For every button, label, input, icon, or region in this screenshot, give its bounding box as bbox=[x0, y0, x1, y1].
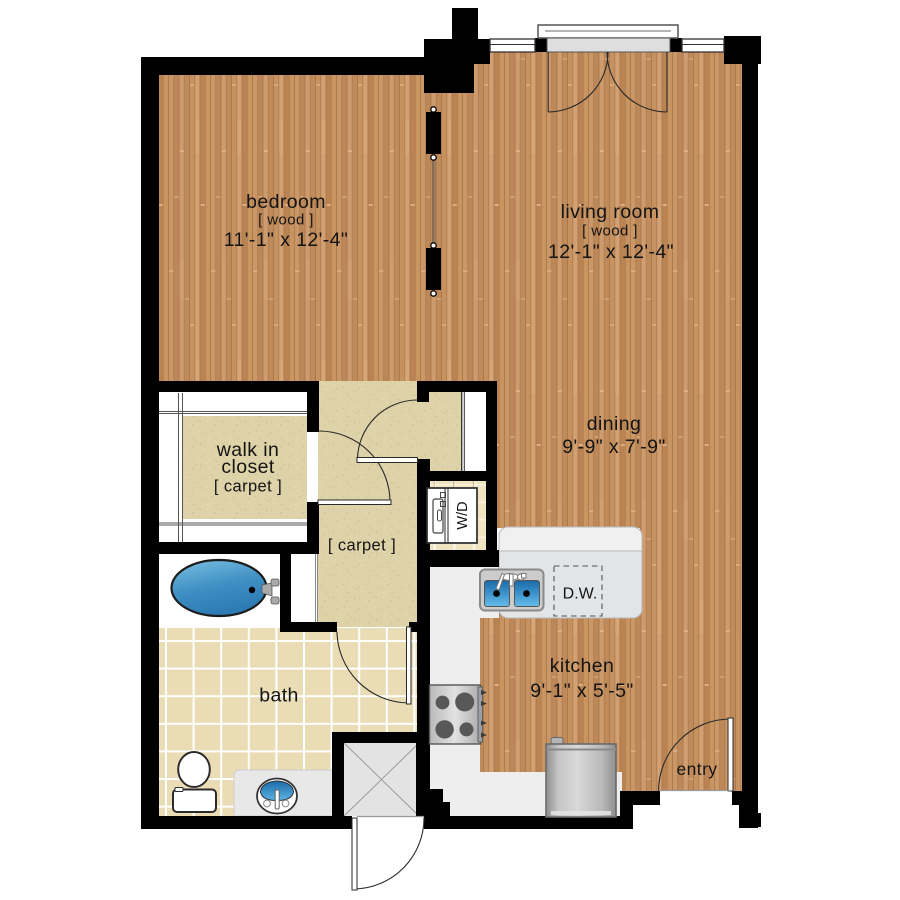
svg-text:W/D: W/D bbox=[455, 501, 471, 529]
svg-text:living room: living room bbox=[561, 201, 660, 223]
svg-text:[ wood ]: [ wood ] bbox=[582, 223, 638, 240]
svg-text:closet: closet bbox=[221, 456, 275, 478]
svg-text:kitchen: kitchen bbox=[550, 655, 615, 677]
svg-text:dining: dining bbox=[587, 413, 641, 435]
svg-text:[ carpet ]: [ carpet ] bbox=[214, 478, 282, 496]
svg-text:[ wood ]: [ wood ] bbox=[258, 212, 314, 229]
svg-text:[ carpet ]: [ carpet ] bbox=[328, 537, 396, 555]
svg-text:bath: bath bbox=[259, 685, 299, 707]
svg-text:9'-1" x 5'-5": 9'-1" x 5'-5" bbox=[530, 680, 633, 702]
svg-text:11'-1" x 12'-4": 11'-1" x 12'-4" bbox=[224, 229, 349, 251]
svg-text:D.W.: D.W. bbox=[563, 586, 598, 603]
svg-text:12'-1" x 12'-4": 12'-1" x 12'-4" bbox=[548, 241, 674, 263]
svg-text:entry: entry bbox=[677, 759, 718, 779]
svg-text:bedroom: bedroom bbox=[246, 191, 326, 213]
svg-text:9'-9" x 7'-9": 9'-9" x 7'-9" bbox=[562, 436, 665, 458]
